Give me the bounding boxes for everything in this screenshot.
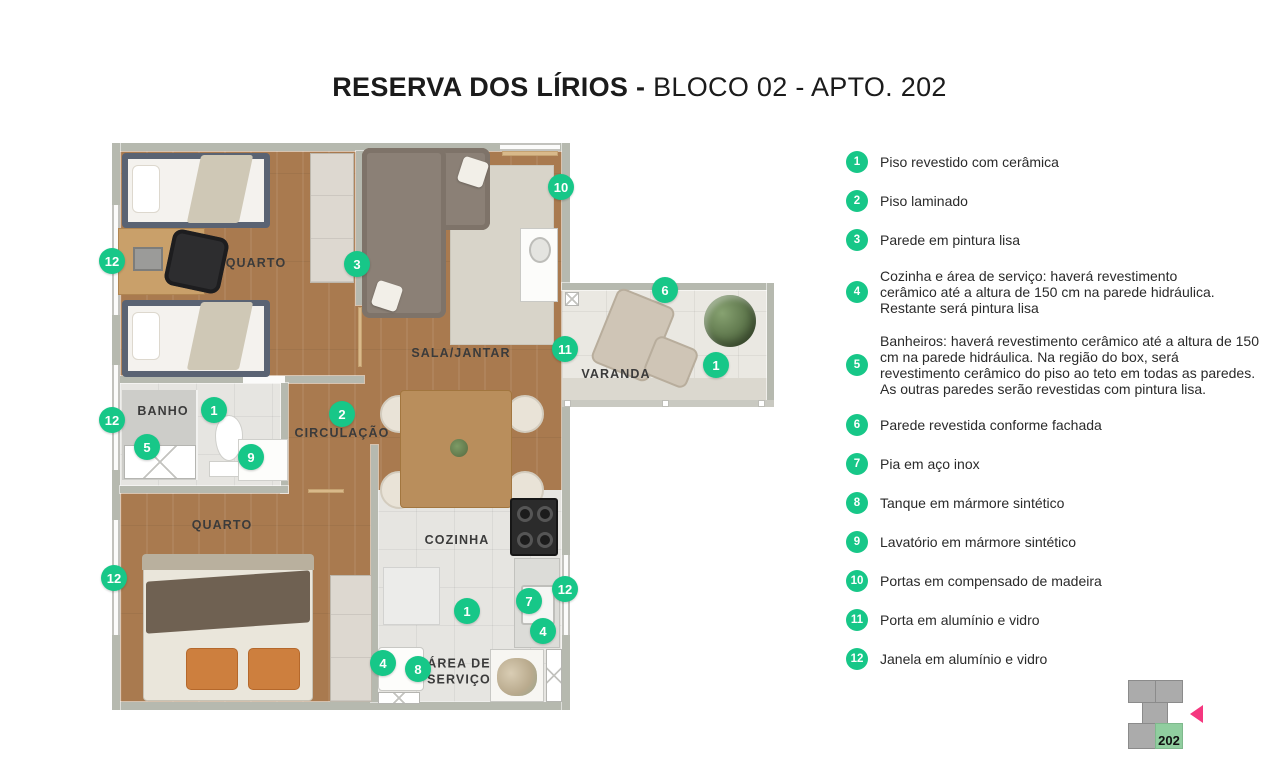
counter [520,228,558,302]
key-plan-block [1128,723,1156,749]
plan-marker-8: 8 [405,656,431,682]
plan-marker-1: 1 [454,598,480,624]
room-label-quarto: QUARTO [226,256,287,272]
room-label-varanda: VARANDA [581,367,650,383]
room-label-banho: BANHO [137,404,188,420]
room-label--rea-de-servi-o: ÁREA DE SERVIÇO [427,656,491,687]
wardrobe-bedroom2 [330,575,372,702]
legend-item-5: 5Banheiros: haverá revestimento cerâmico… [846,333,1270,397]
legend-text: Porta em alumínio e vidro [880,612,1040,628]
kitchen-table [383,567,440,625]
legend-text: Parede revestida conforme fachada [880,417,1102,433]
legend-text: Lavatório em mármore sintético [880,534,1076,550]
room-label-sala-jantar: SALA/JANTAR [411,346,510,362]
single-bed-1 [122,153,270,228]
railing-post [564,400,571,407]
burner [517,506,533,522]
key-plan-block [1155,680,1183,703]
title-unit: BLOCO 02 - APTO. 202 [645,72,946,102]
double-bed [143,555,313,701]
legend-text: Portas em compensado de madeira [880,573,1102,589]
legend-number-badge: 10 [846,570,868,592]
bedroom1-door-leaf [358,307,362,367]
legend-item-2: 2Piso laminado [846,190,1270,212]
legend-item-3: 3Parede em pintura lisa [846,229,1270,251]
pillow [132,312,160,360]
plan-marker-12: 12 [99,407,125,433]
blanket [146,570,310,633]
legend-number-badge: 6 [846,414,868,436]
legend-item-4: 4Cozinha e área de serviço: haverá reves… [846,268,1270,316]
plan-marker-2: 2 [329,401,355,427]
legend-number-badge: 2 [846,190,868,212]
plan-marker-12: 12 [99,248,125,274]
legend-text: Pia em aço inox [880,456,980,472]
laptop [133,247,163,271]
wall-bath-south [120,486,288,493]
railing-post [758,400,765,407]
desk-chair [163,228,231,296]
plan-marker-4: 4 [370,650,396,676]
blanket [187,155,253,223]
plan-marker-5: 5 [134,434,160,460]
plan-marker-9: 9 [238,444,264,470]
legend-text: Cozinha e área de serviço: haverá revest… [880,268,1215,316]
bathroom-door-opening [243,376,285,383]
burner [537,506,553,522]
room-label-quarto: QUARTO [192,518,253,534]
legend-item-8: 8Tanque em mármore sintético [846,492,1270,514]
legend-number-badge: 7 [846,453,868,475]
legend-number-badge: 12 [846,648,868,670]
wall-bottom [112,702,570,710]
entry-door-leaf [502,151,558,156]
legend-number-badge: 8 [846,492,868,514]
plan-marker-7: 7 [516,588,542,614]
orange-pillow [186,648,238,690]
location-arrow-icon [1190,705,1203,723]
legend-number-badge: 4 [846,281,868,303]
page-title: RESERVA DOS LÍRIOS - BLOCO 02 - APTO. 20… [0,72,1279,103]
pillow [132,165,160,213]
plan-marker-1: 1 [201,397,227,423]
balcony-plant [704,295,756,347]
legend-item-1: 1Piso revestido com cerâmica [846,151,1270,173]
plan-marker-12: 12 [101,565,127,591]
railing-post [662,400,669,407]
legend-number-badge: 5 [846,354,868,376]
stove [510,498,558,556]
balcony-window-symbol [565,292,579,306]
service-panel [378,692,420,704]
plan-marker-11: 11 [552,336,578,362]
legend-text: Janela em alumínio e vidro [880,651,1047,667]
plan-marker-6: 6 [652,277,678,303]
bedroom2-door-leaf [308,489,344,493]
single-bed-2 [122,300,270,377]
legend-number-badge: 11 [846,609,868,631]
legend-text: Piso laminado [880,193,968,209]
counter-sink [529,237,551,263]
key-plan-block [1128,680,1156,703]
headboard [142,554,314,570]
blanket [187,302,253,370]
legend-text: Banheiros: haverá revestimento cerâmico … [880,333,1259,397]
key-plan-unit-202: 202 [1155,723,1183,749]
plan-marker-1: 1 [703,352,729,378]
plan-marker-4: 4 [530,618,556,644]
room-label-cozinha: COZINHA [425,533,490,549]
title-project: RESERVA DOS LÍRIOS - [332,72,645,102]
legend-text: Piso revestido com cerâmica [880,154,1059,170]
legend-number-badge: 1 [846,151,868,173]
legend-item-11: 11Porta em alumínio e vidro [846,609,1270,631]
finishes-legend: 1Piso revestido com cerâmica2Piso lamina… [846,151,1270,670]
washing-machine [490,649,544,702]
table-plant [450,439,468,457]
plan-marker-3: 3 [344,251,370,277]
legend-number-badge: 3 [846,229,868,251]
orange-pillow [248,648,300,690]
legend-number-badge: 9 [846,531,868,553]
legend-text: Parede em pintura lisa [880,232,1020,248]
legend-item-9: 9Lavatório em mármore sintético [846,531,1270,553]
plan-marker-12: 12 [552,576,578,602]
key-plan-block [1142,702,1168,724]
balcony-wall-right [767,283,774,400]
legend-item-10: 10Portas em compensado de madeira [846,570,1270,592]
room-label-circula-o: CIRCULAÇÃO [294,426,389,442]
wall-bedroom1-south [120,376,364,383]
plan-marker-10: 10 [548,174,574,200]
page: RESERVA DOS LÍRIOS - BLOCO 02 - APTO. 20… [0,0,1279,767]
balcony-railing [562,400,774,407]
burner [537,532,553,548]
service-panel [546,649,562,702]
burner [517,532,533,548]
entry-door-opening [500,143,560,151]
clothes [497,658,537,696]
legend-text: Tanque em mármore sintético [880,495,1064,511]
floor-plan: QUARTOSALA/JANTARVARANDABANHOCIRCULAÇÃOQ… [112,143,774,710]
legend-item-12: 12Janela em alumínio e vidro [846,648,1270,670]
legend-item-6: 6Parede revestida conforme fachada [846,414,1270,436]
legend-item-7: 7Pia em aço inox [846,453,1270,475]
